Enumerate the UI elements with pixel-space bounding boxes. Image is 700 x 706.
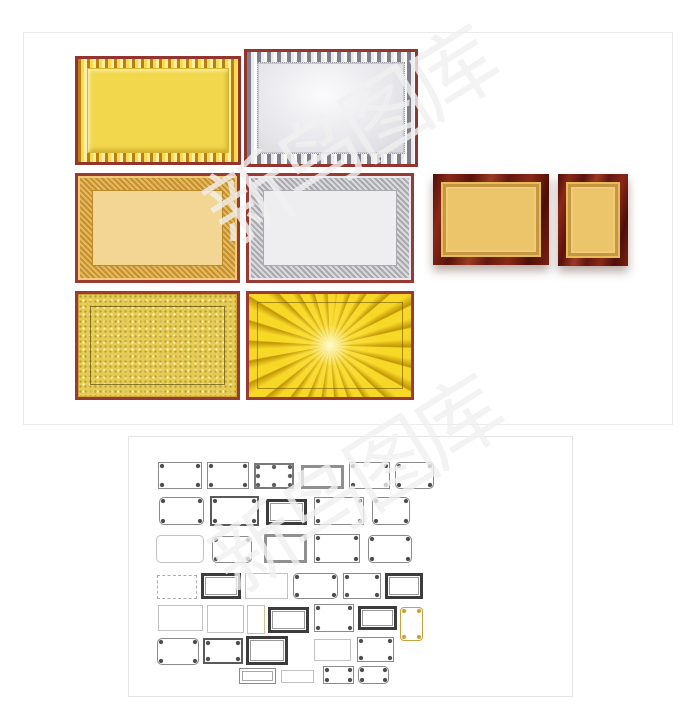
border-frame-8 (210, 496, 259, 526)
border-frame-27 (314, 604, 354, 632)
border-frame-3 (254, 463, 294, 489)
border-frame-16 (368, 535, 412, 563)
border-frame-6 (395, 462, 434, 489)
plaque-gold-speckled (75, 291, 240, 400)
border-frame-9 (266, 499, 307, 525)
plaque-gold-sunburst (75, 56, 241, 165)
border-frame-19 (245, 573, 288, 599)
border-frame-13 (212, 536, 252, 563)
border-frame-18 (201, 573, 241, 599)
border-frame-31 (203, 638, 243, 664)
border-frame-36 (281, 670, 314, 683)
plaque-wood-gold-landscape (433, 174, 549, 265)
border-frame-11 (372, 497, 410, 525)
border-frame-22 (385, 573, 423, 599)
border-frame-10 (314, 497, 364, 525)
border-frame-30 (157, 638, 199, 665)
plaque-silver-ornate (246, 173, 414, 283)
border-frame-26 (268, 607, 309, 633)
border-frame-14 (264, 534, 307, 563)
border-frame-4 (301, 465, 344, 489)
border-frame-5 (349, 462, 390, 489)
border-frame-35 (239, 668, 276, 684)
border-frame-34 (357, 637, 394, 662)
border-frame-2 (207, 462, 249, 489)
border-frame-12 (156, 535, 204, 563)
border-frame-24 (207, 605, 244, 633)
border-frame-20 (293, 573, 338, 599)
plaque-gold-ornate (75, 173, 240, 283)
border-frame-37 (323, 666, 354, 684)
border-frame-28 (358, 606, 397, 630)
border-frame-21 (343, 573, 381, 599)
border-frame-17 (157, 575, 197, 599)
page: { "page": { "background": "#ffffff", "de… (0, 0, 700, 706)
border-frame-23 (158, 605, 203, 631)
border-frame-1 (158, 462, 202, 489)
border-frame-38 (358, 666, 389, 684)
border-frame-32 (246, 636, 288, 665)
top-image-panel (23, 32, 673, 425)
border-frame-25 (247, 605, 265, 634)
border-frame-7 (159, 497, 204, 525)
plaque-silver-sunburst (244, 49, 418, 167)
plaque-wood-gold-portrait (558, 174, 628, 266)
plaque-gold-radial (246, 291, 414, 400)
border-frame-15 (314, 534, 360, 563)
border-frame-33 (314, 639, 351, 661)
border-frame-29 (400, 607, 423, 641)
bottom-image-panel (128, 436, 573, 697)
